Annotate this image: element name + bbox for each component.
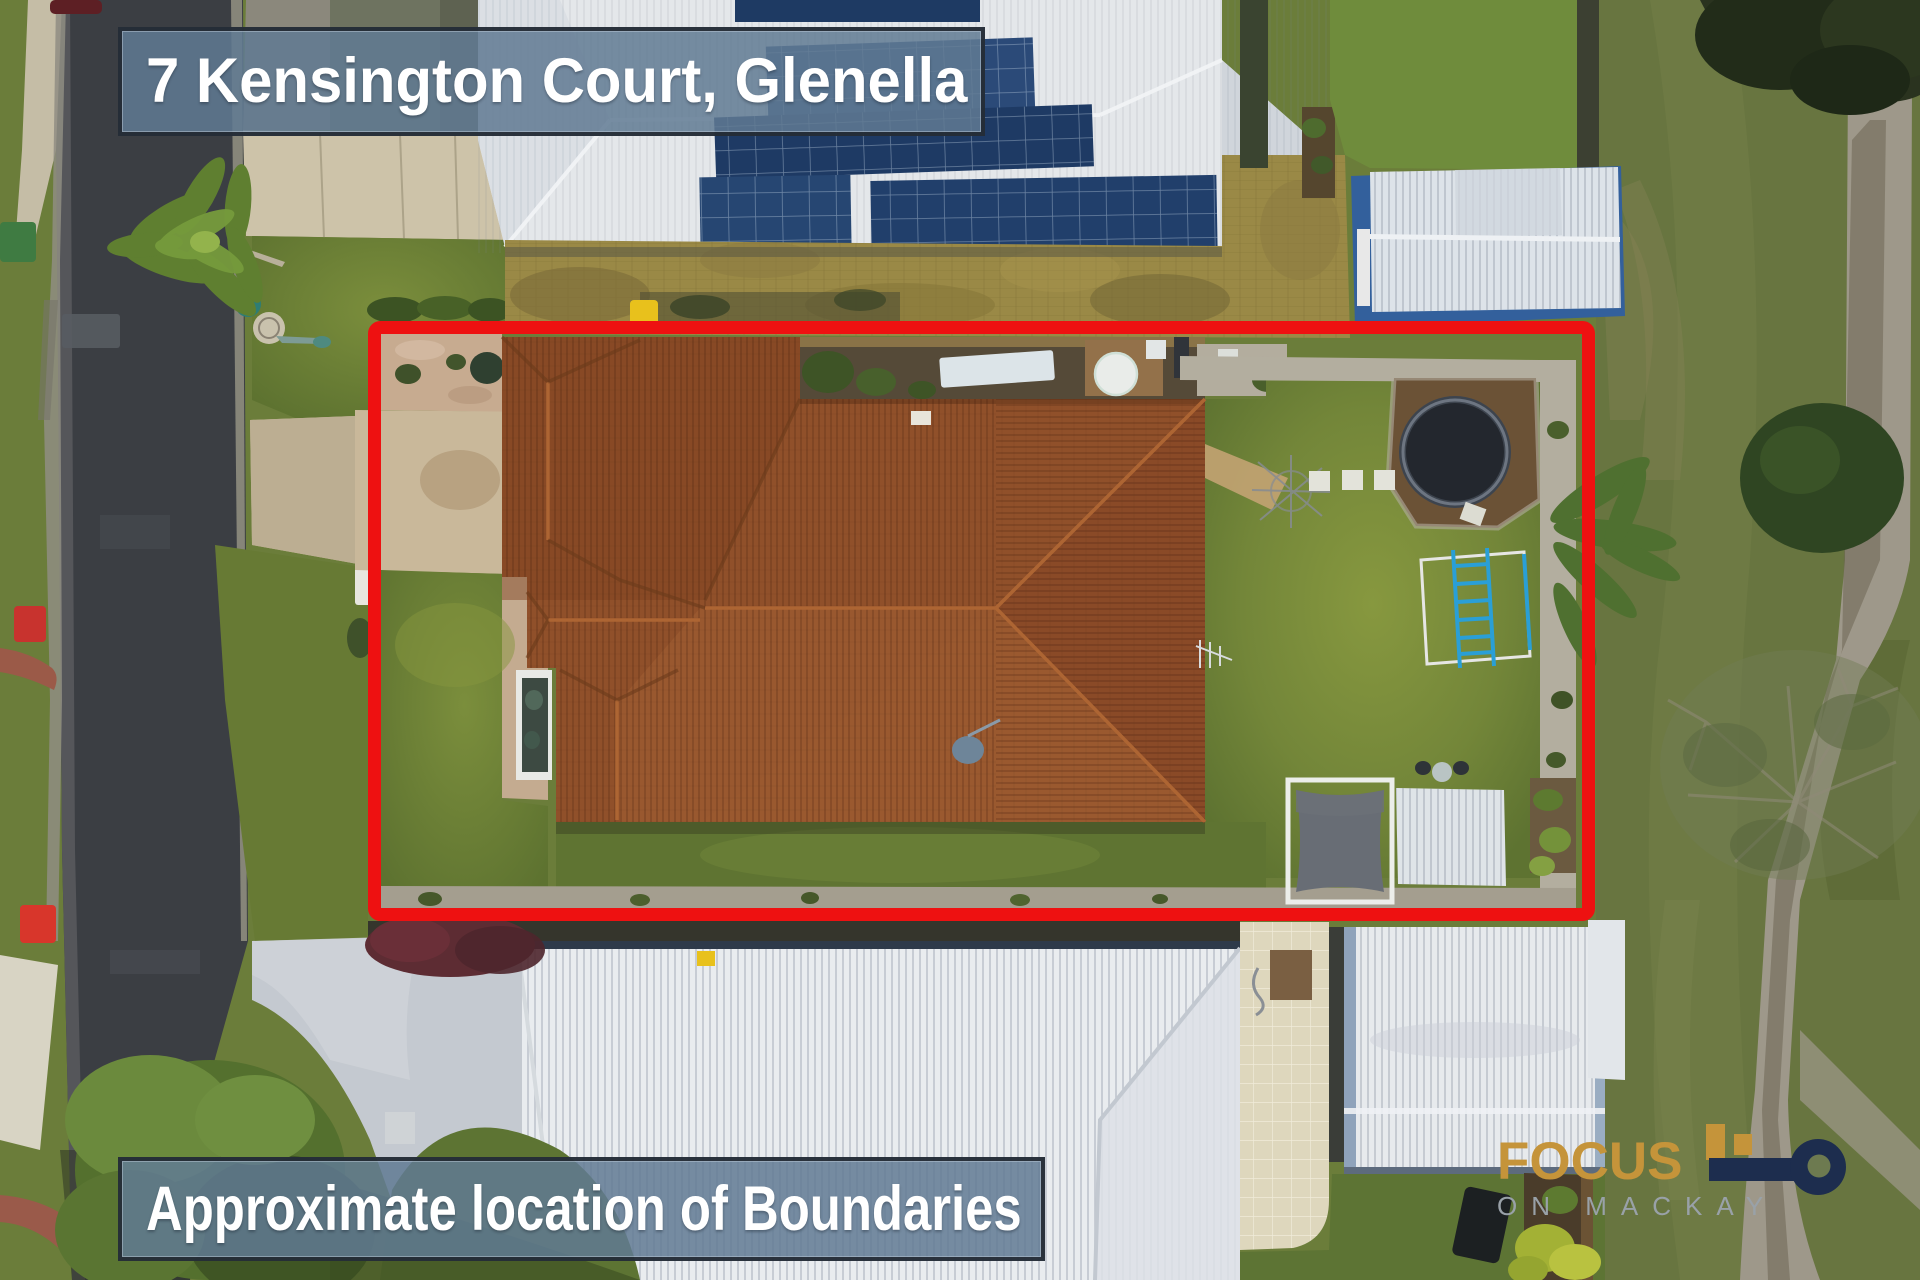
svg-text:FOCUS: FOCUS [1497, 1132, 1683, 1191]
svg-text:ON MACKAY: ON MACKAY [1497, 1191, 1777, 1221]
